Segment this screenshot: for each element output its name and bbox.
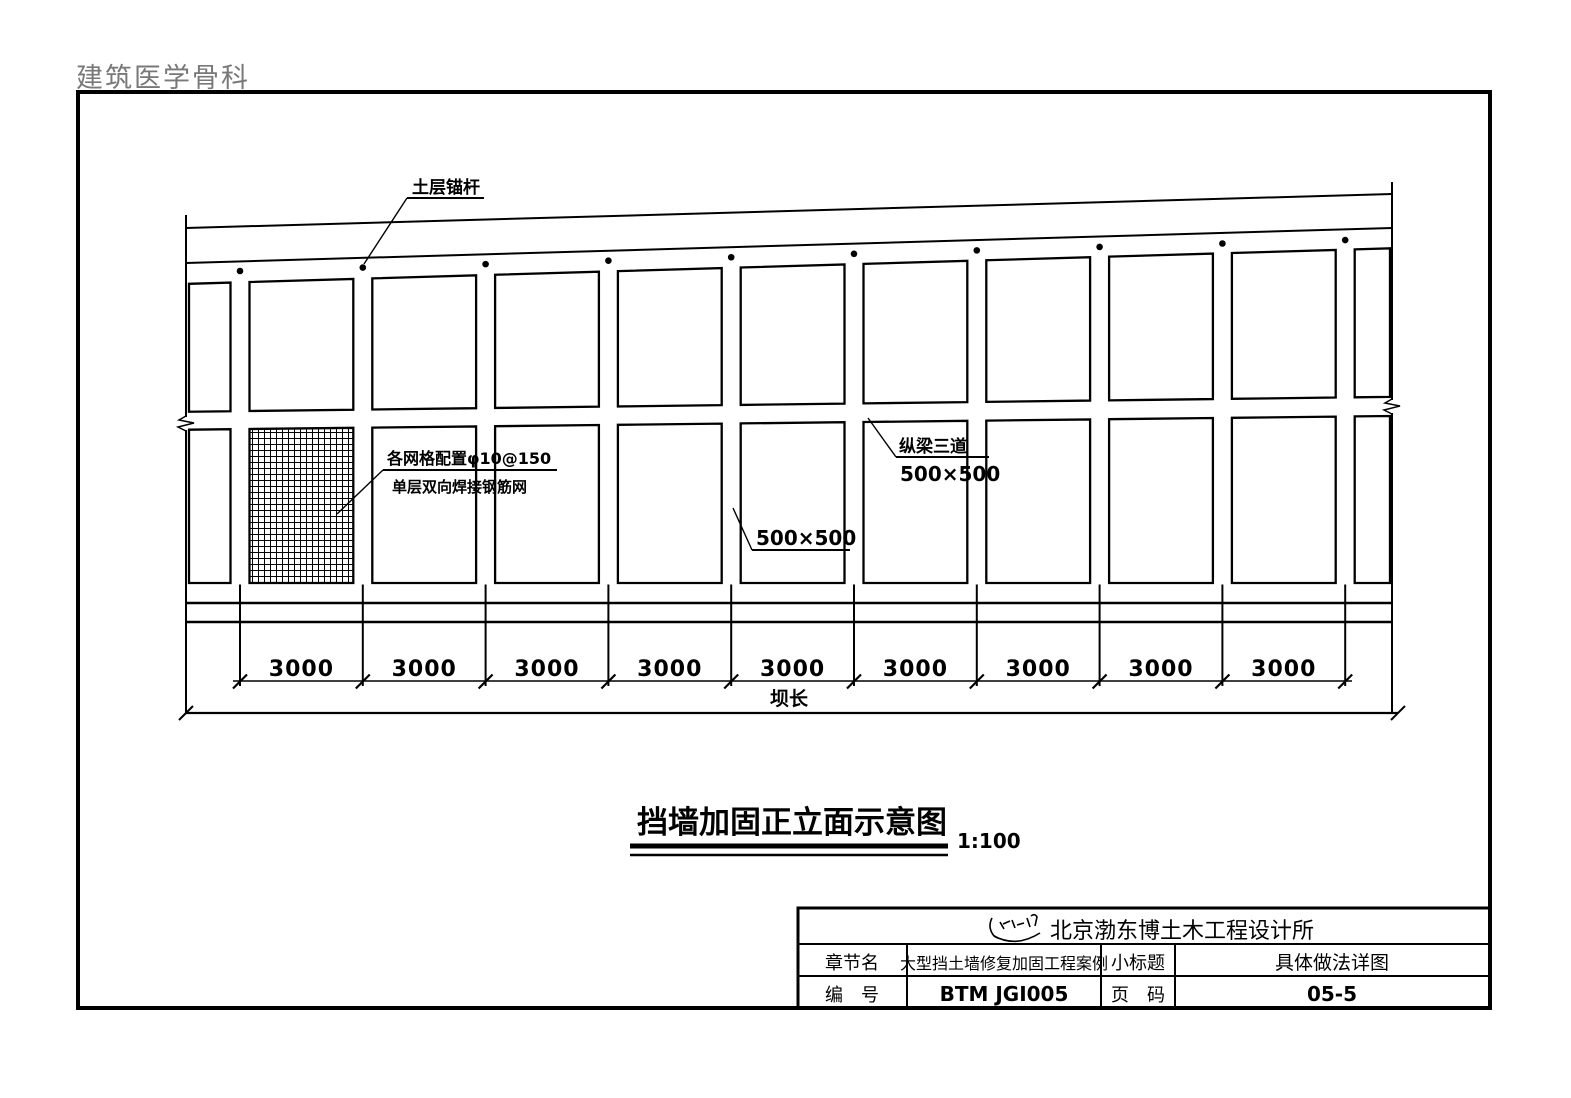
title-block: 北京渤东博土木工程设计所 章节名 大型挡土墙修复加固工程案例 小标题 具体做法详… (798, 908, 1490, 1008)
drawing-title: 挡墙加固正立面示意图 (637, 805, 947, 841)
anchor-dot (605, 257, 612, 264)
company-name: 北京渤东博土木工程设计所 (1050, 919, 1314, 944)
field-page-value: 05-5 (1307, 982, 1357, 1006)
wall-panel (250, 279, 354, 411)
ground-line-lower (186, 228, 1392, 263)
wall-panel (741, 422, 845, 583)
annotations: 土层锚杆 各网格配置φ10@150 单层双向焊接钢筋网 纵梁三道 500×500… (337, 177, 1000, 550)
anchor-dot (974, 247, 981, 254)
field-subtitle-value: 具体做法详图 (1275, 952, 1389, 974)
dim-label: 3000 (269, 657, 334, 682)
dim-label: 3000 (1251, 657, 1316, 682)
dim-label: 3000 (883, 657, 948, 682)
company-logo (990, 915, 1040, 942)
wall-panel (372, 275, 476, 409)
wall-panel (495, 272, 599, 408)
ground-line-upper (186, 194, 1392, 228)
field-chapter-label: 章节名 (825, 953, 879, 974)
anchor-dot (482, 261, 489, 268)
dim-label: 3000 (760, 657, 825, 682)
mesh-label-line2: 单层双向焊接钢筋网 (392, 478, 527, 496)
wall-panel-partial (189, 429, 231, 583)
dim-label: 3000 (514, 657, 579, 682)
field-chapter-value: 大型挡土墙修复加固工程案例 (900, 954, 1108, 973)
anchor-dot (360, 264, 367, 271)
wall-panel (741, 264, 845, 404)
anchor-dot (1342, 237, 1349, 244)
mesh-panel (250, 428, 354, 583)
elevation-drawing-canvas: 300030003000300030003000300030003000坝长 土… (0, 0, 1571, 1098)
dim-label: 3000 (1006, 657, 1071, 682)
wall-panel-partial (189, 283, 231, 412)
anchor-leader (364, 198, 407, 264)
wall-panel-partial (1355, 416, 1390, 583)
dim-label: 3000 (637, 657, 702, 682)
field-page-label: 页 码 (1111, 985, 1165, 1006)
dim-label: 3000 (1128, 657, 1193, 682)
beam-size-label: 500×500 (900, 462, 1000, 486)
field-number-value: BTM JGI005 (940, 982, 1069, 1006)
field-number-label: 编 号 (825, 985, 879, 1006)
break-symbol-right (1384, 399, 1400, 414)
wall-panel (864, 261, 968, 404)
anchor-dot (1096, 244, 1103, 251)
wall-panel (1232, 250, 1336, 399)
dim-label: 3000 (392, 657, 457, 682)
anchor-dot (851, 251, 858, 258)
beam-leader (868, 418, 896, 457)
drawing-title-group: 挡墙加固正立面示意图 1:100 (630, 805, 1021, 855)
wall-panel (986, 419, 1090, 583)
anchor-dot (237, 268, 244, 275)
wall-panel (1232, 417, 1336, 583)
mesh-label-line1: 各网格配置φ10@150 (386, 449, 551, 468)
wall-panel (618, 424, 722, 583)
anchor-label: 土层锚杆 (412, 177, 480, 198)
scale-label: 1:100 (957, 829, 1021, 853)
panel-size-label: 500×500 (756, 526, 856, 550)
wall-panel (986, 257, 1090, 402)
wall-panel-partial (1355, 248, 1390, 397)
beam-label: 纵梁三道 (899, 436, 967, 457)
total-dim-label: 坝长 (770, 688, 809, 710)
wall-panel (1109, 254, 1213, 401)
anchor-dot (1219, 240, 1226, 247)
field-subtitle-label: 小标题 (1111, 953, 1165, 974)
panel-size-leader (733, 508, 752, 550)
anchor-dot (728, 254, 735, 261)
wall-panel (1109, 418, 1213, 583)
wall-panel (618, 268, 722, 406)
